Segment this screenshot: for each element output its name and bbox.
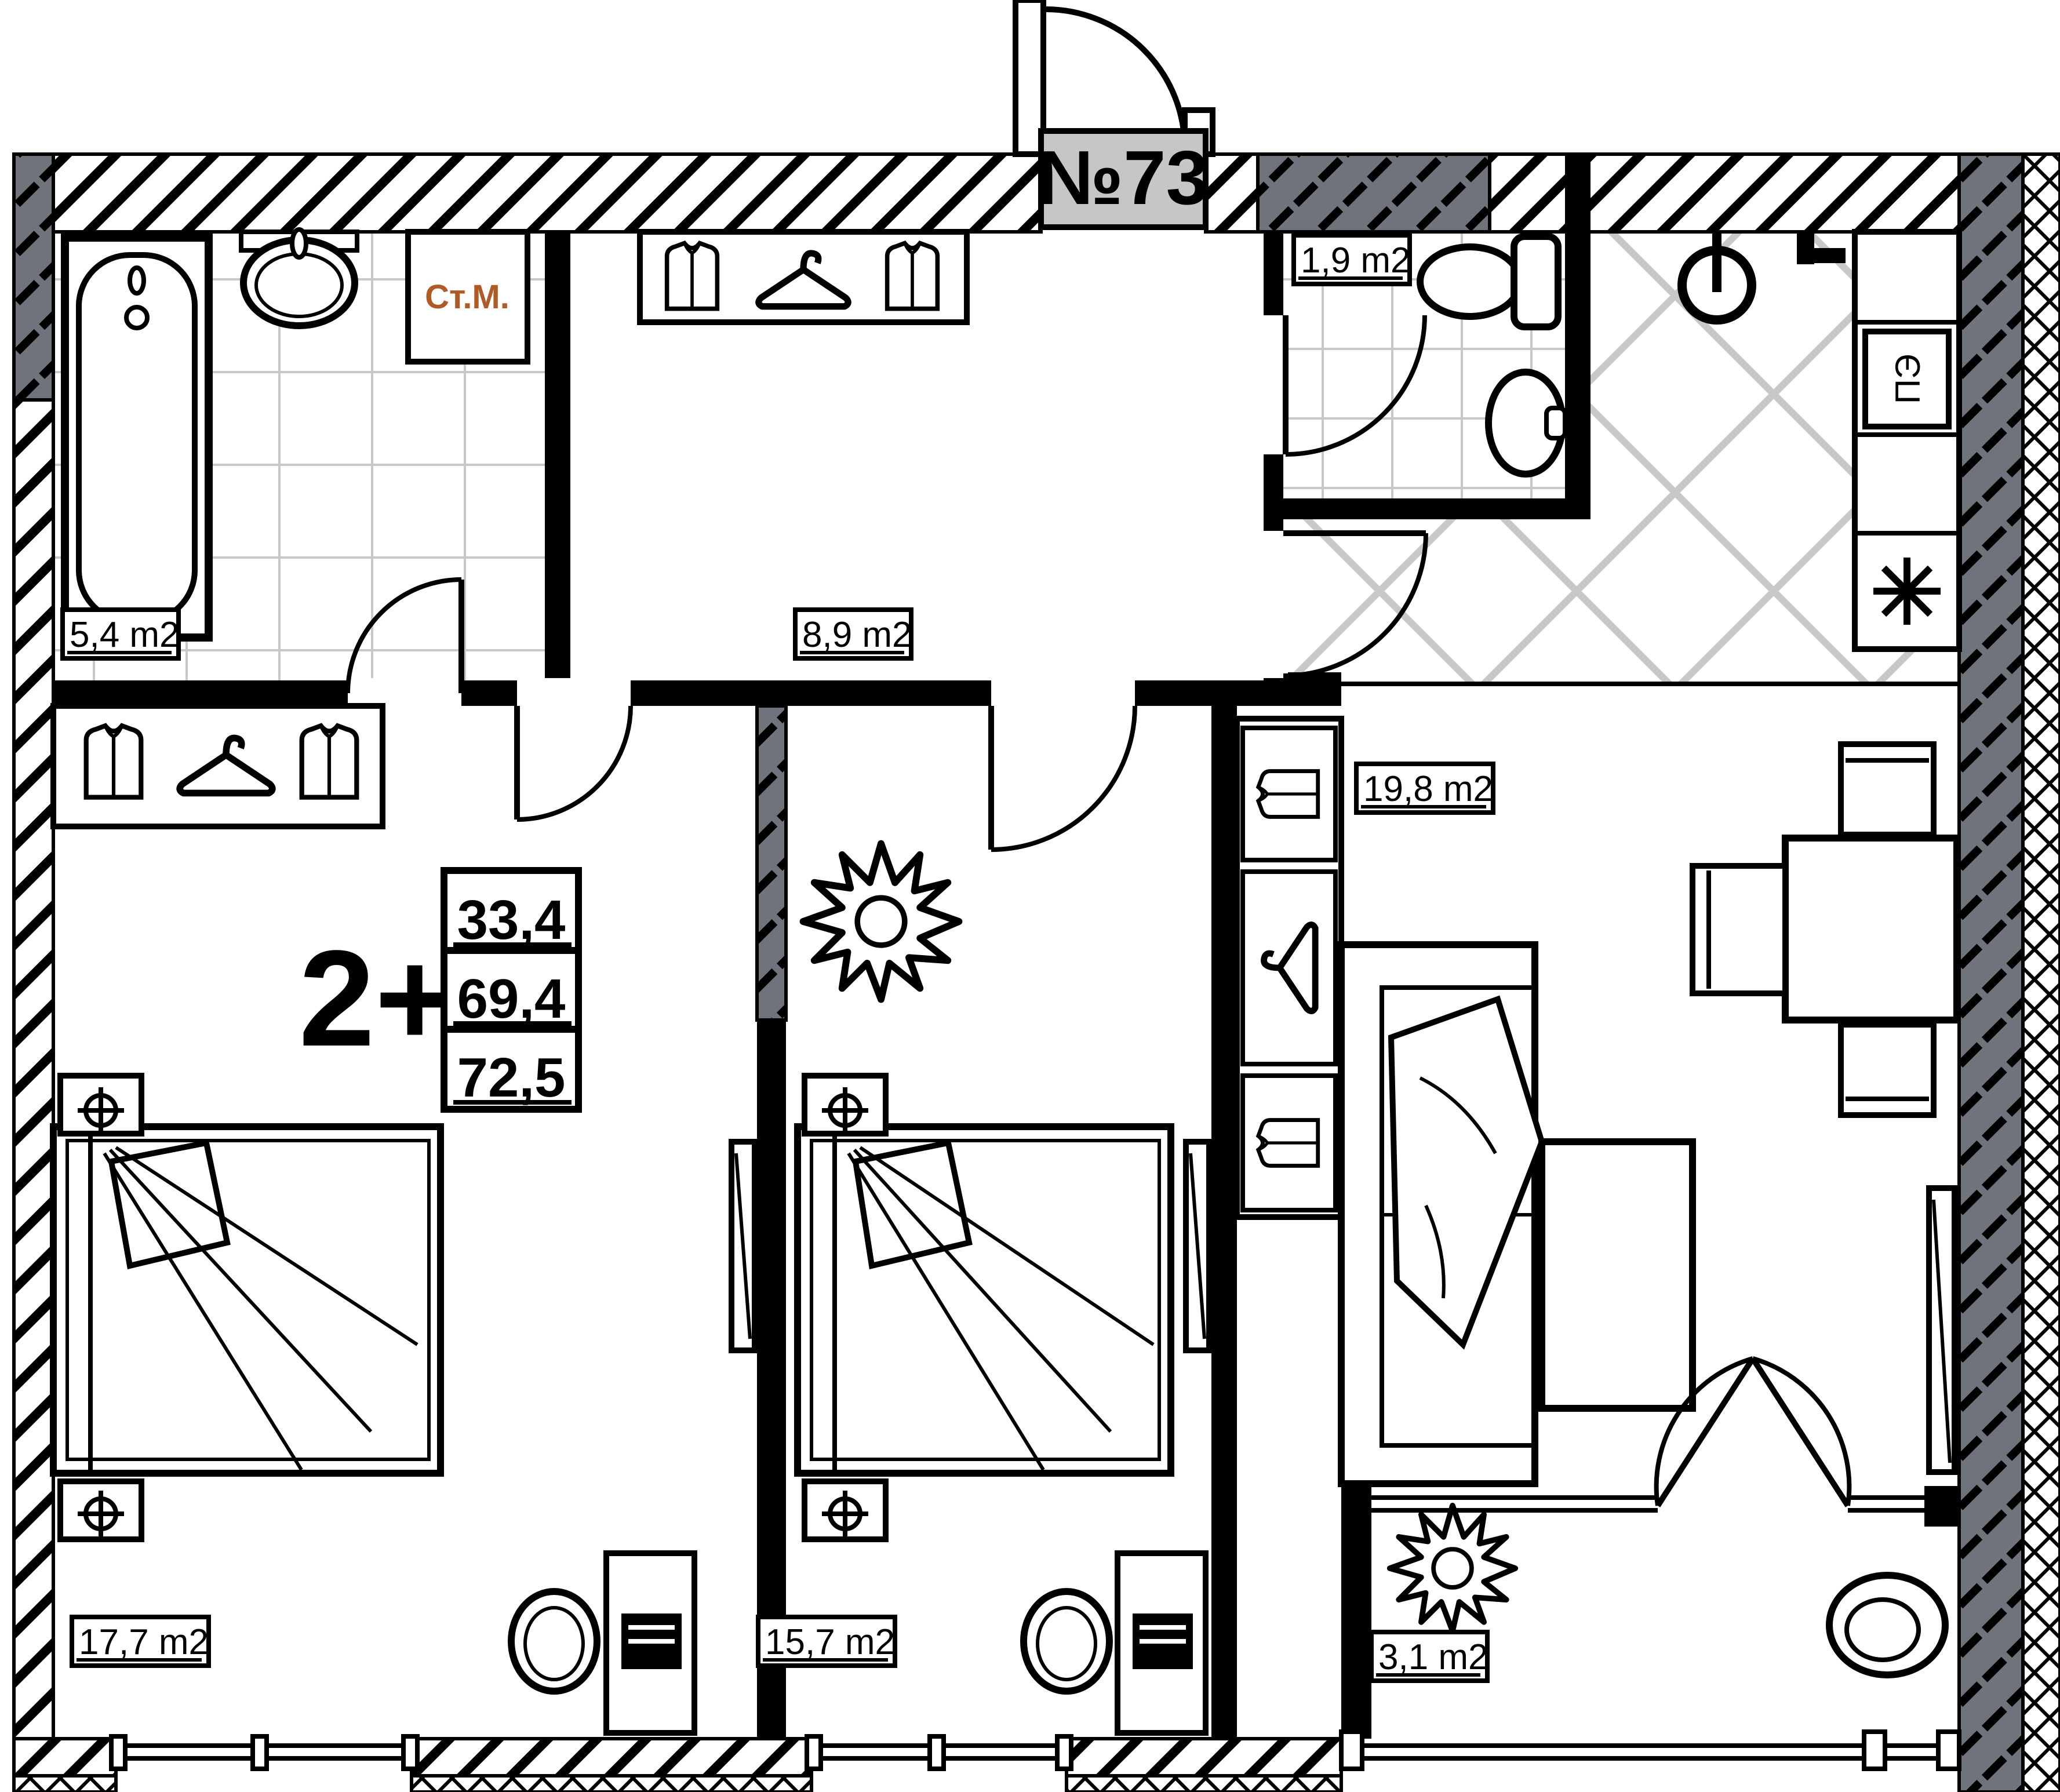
bathroom-hall-wall (545, 232, 570, 680)
shirt-icon (86, 726, 141, 797)
room-label-bathroom: 5,4 m2 (63, 610, 180, 658)
washing-machine-label: Ст.М. (425, 278, 509, 316)
living-area-value: 33,4 (457, 889, 566, 951)
bedroom1-door-swing (517, 706, 631, 819)
room-label-bedroom-main: 17,7 m2 (72, 1617, 209, 1666)
shirt-icon (302, 726, 357, 797)
flat-type: 2+ (299, 922, 454, 1075)
top-wall-left (14, 154, 1041, 232)
bedroom2-living-wall (1211, 706, 1237, 1739)
shirt-icon (1258, 1120, 1318, 1166)
entrance: №73 (1016, 0, 1213, 227)
dining-chair (1841, 744, 1934, 835)
floor-plan-page: №73 Ст.М. (0, 0, 2060, 1792)
svg-text:1,9 m2: 1,9 m2 (1301, 241, 1411, 281)
svg-text:17,7 m2: 17,7 m2 (79, 1622, 209, 1662)
svg-text:15,7 m2: 15,7 m2 (765, 1622, 895, 1662)
bedroom-second (798, 844, 1209, 1733)
left-wall (14, 400, 53, 1792)
entrance-door-swing (1046, 9, 1185, 148)
electric-stove-label: ПЭ (1888, 354, 1927, 404)
total-area-value: 69,4 (457, 968, 566, 1030)
wc-right-wall (1565, 154, 1591, 519)
sink-tap (292, 230, 306, 257)
wc-bottom-wall (1283, 498, 1565, 519)
living-room (1237, 719, 1957, 1484)
bottom-pier-2 (412, 1739, 811, 1776)
bedroom-main (53, 706, 755, 1733)
dining-chair (1841, 1025, 1934, 1115)
top-wall-insulated (1258, 154, 1490, 232)
shirt-icon (1258, 771, 1318, 817)
left-wall-insulated (14, 154, 53, 400)
svg-text:19,8 m2: 19,8 m2 (1363, 769, 1493, 809)
right-wall-outer-layer (2023, 154, 2060, 1792)
shirt-icon (667, 243, 718, 309)
bottom-pier-3 (1067, 1739, 1341, 1776)
floor-plan: №73 Ст.М. (0, 0, 2060, 1792)
shirt-icon (887, 243, 938, 309)
room-label-balcony: 3,1 m2 (1371, 1632, 1488, 1681)
svg-text:8,9 m2: 8,9 m2 (802, 615, 912, 655)
room-label-wc: 1,9 m2 (1294, 235, 1411, 284)
dining-table (1785, 838, 1957, 1020)
apartment-number: №73 (1038, 135, 1209, 220)
svg-text:3,1 m2: 3,1 m2 (1378, 1637, 1488, 1677)
room-label-hallway: 8,9 m2 (795, 610, 912, 658)
toilet-tank (1514, 236, 1558, 327)
pillow (856, 1143, 969, 1266)
svg-text:5,4 m2: 5,4 m2 (70, 615, 180, 655)
hallway (640, 232, 967, 322)
toilet (1420, 247, 1520, 316)
plant-icon (1390, 1506, 1516, 1631)
balcony-left-wall (1341, 1486, 1371, 1739)
flat-summary: 2+ 33,4 69,4 72,5 (299, 870, 578, 1109)
coffee-table (1542, 1142, 1693, 1408)
room-label-living: 19,8 m2 (1356, 764, 1493, 813)
bed-double (798, 1127, 1171, 1473)
bedroom2-door-swing (991, 706, 1135, 850)
plant-icon (803, 844, 959, 1000)
room-label-bedroom-second: 15,7 m2 (758, 1617, 895, 1666)
pillow (111, 1143, 227, 1266)
right-wall-insulated (1959, 154, 2023, 1792)
top-wall-pier (1206, 154, 1258, 232)
total-with-balcony-value: 72,5 (457, 1047, 566, 1109)
bottom-pier-1 (14, 1739, 116, 1776)
